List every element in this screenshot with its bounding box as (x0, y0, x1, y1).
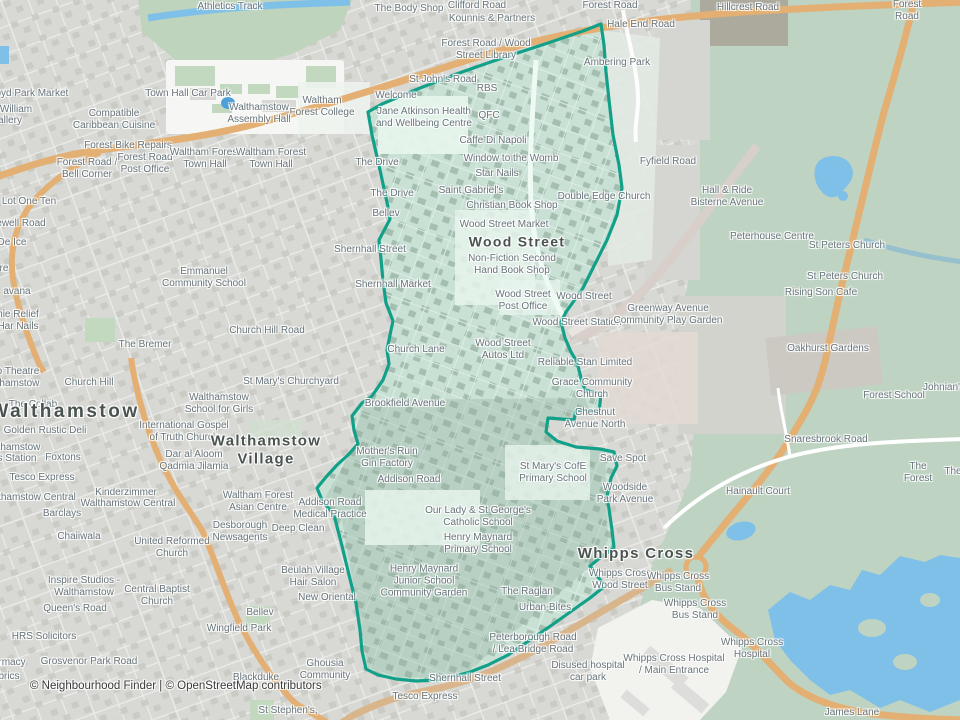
map-canvas[interactable]: Athletics TrackThe Body ShopClifford Roa… (0, 0, 960, 720)
attribution: © Neighbourhood Finder | © OpenStreetMap… (30, 680, 322, 692)
map-tiles (0, 0, 960, 720)
